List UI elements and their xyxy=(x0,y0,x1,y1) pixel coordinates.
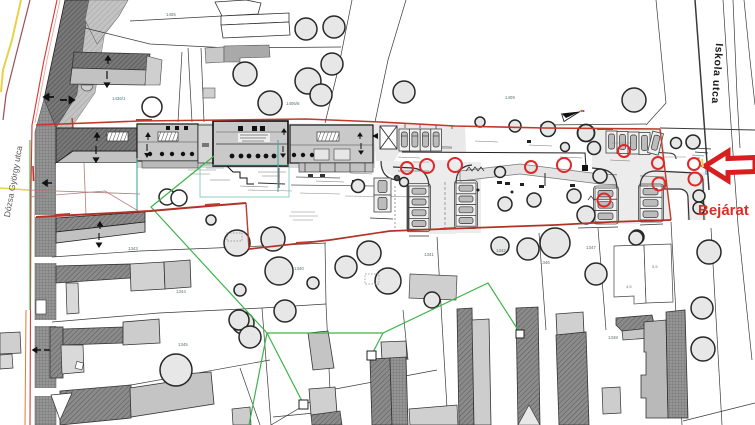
svg-text:1343: 1343 xyxy=(128,246,138,251)
svg-text:1406/6: 1406/6 xyxy=(286,101,300,106)
svg-text:1342: 1342 xyxy=(496,248,506,253)
svg-text:1346: 1346 xyxy=(540,260,550,265)
svg-text:1340: 1340 xyxy=(294,266,304,271)
svg-text:4,5: 4,5 xyxy=(626,284,632,289)
svg-text:1344: 1344 xyxy=(176,289,186,294)
svg-text:1348: 1348 xyxy=(608,335,618,340)
svg-text:Bejárat: Bejárat xyxy=(698,202,749,219)
svg-text:1409: 1409 xyxy=(505,95,515,100)
svg-text:1345: 1345 xyxy=(178,342,188,347)
svg-text:1341: 1341 xyxy=(424,252,434,257)
svg-text:1405: 1405 xyxy=(166,12,176,17)
svg-text:1347: 1347 xyxy=(586,245,596,250)
svg-text:1436/1: 1436/1 xyxy=(112,96,126,101)
svg-text:5,5: 5,5 xyxy=(652,264,658,269)
